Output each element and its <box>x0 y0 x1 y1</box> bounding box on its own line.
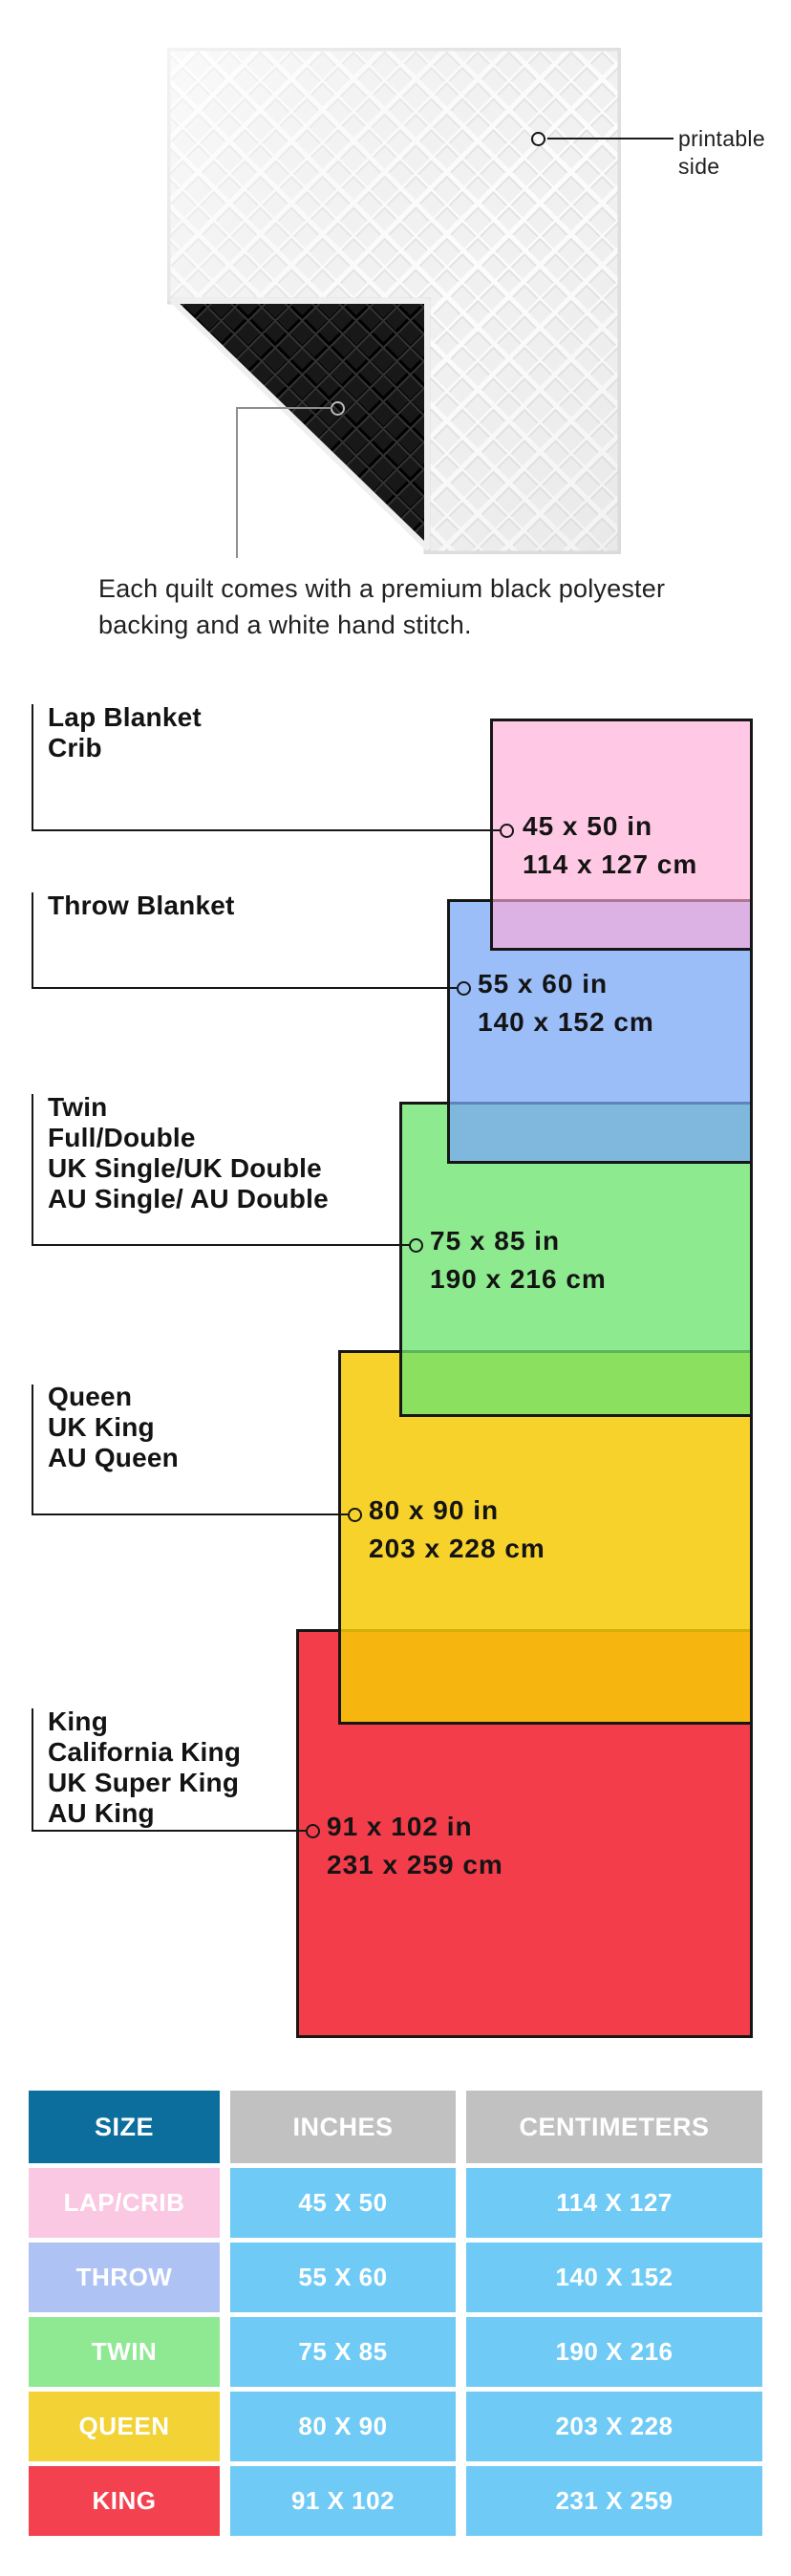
leader-king-circle-icon <box>306 1824 320 1838</box>
size-label-twin-line: AU Single/ AU Double <box>48 1184 329 1214</box>
leader-lap-horizontal <box>32 829 500 831</box>
size-label-king-line: California King <box>48 1737 241 1768</box>
size-label-twin-line: Twin <box>48 1092 329 1123</box>
dimensions-king: 91 x 102 in 231 x 259 cm <box>327 1808 503 1884</box>
size-label-lap: Lap Blanket Crib <box>48 702 202 763</box>
table-row-twin-size: TWIN <box>29 2317 220 2387</box>
leader-throw-vertical <box>32 892 33 988</box>
size-label-king-line: King <box>48 1707 241 1737</box>
table-row-king-cm: 231 X 259 <box>466 2466 762 2536</box>
dimensions-lap-inches: 45 x 50 in <box>523 807 697 846</box>
dimensions-lap: 45 x 50 in 114 x 127 cm <box>523 807 697 884</box>
dimensions-twin-cm: 190 x 216 cm <box>430 1260 607 1299</box>
backing-caption: Each quilt comes with a premium black po… <box>98 570 729 643</box>
leader-king-vertical <box>32 1708 33 1831</box>
backing-leader-line-vertical <box>236 407 238 558</box>
dimensions-throw: 55 x 60 in 140 x 152 cm <box>478 965 654 1041</box>
size-label-queen-line: Queen <box>48 1382 179 1412</box>
leader-queen-vertical <box>32 1385 33 1514</box>
size-label-king: King California King UK Super King AU Ki… <box>48 1707 241 1829</box>
backing-caption-line1: Each quilt comes with a premium black po… <box>98 570 729 607</box>
table-row-king-inches: 91 X 102 <box>230 2466 456 2536</box>
size-label-lap-line: Crib <box>48 733 202 763</box>
backing-callout-circle-icon <box>331 401 345 416</box>
dimensions-lap-cm: 114 x 127 cm <box>523 846 697 884</box>
size-label-queen: Queen UK King AU Queen <box>48 1382 179 1473</box>
size-label-king-line: UK Super King <box>48 1768 241 1798</box>
table-row-throw-size: THROW <box>29 2243 220 2312</box>
backing-leader-line-horizontal <box>237 407 332 409</box>
dimensions-throw-cm: 140 x 152 cm <box>478 1003 654 1041</box>
table-header-size: SIZE <box>29 2091 220 2163</box>
size-table: SIZE INCHES CENTIMETERS LAP/CRIB 45 X 50… <box>29 2091 762 2536</box>
size-label-twin-line: UK Single/UK Double <box>48 1153 329 1184</box>
leader-lap-circle-icon <box>500 824 514 838</box>
size-label-throw-line: Throw Blanket <box>48 891 235 921</box>
leader-throw-circle-icon <box>457 981 471 996</box>
table-row-lap-size: LAP/CRIB <box>29 2168 220 2238</box>
size-label-queen-line: UK King <box>48 1412 179 1443</box>
printable-side-label-line2: side <box>678 153 765 181</box>
leader-lap-vertical <box>32 704 33 829</box>
table-row-twin-inches: 75 X 85 <box>230 2317 456 2387</box>
dimensions-queen-inches: 80 x 90 in <box>369 1492 545 1530</box>
quilt-size-infographic: printable side Each quilt comes with a p… <box>0 0 791 2576</box>
table-header-centimeters: CENTIMETERS <box>466 2091 762 2163</box>
leader-twin-vertical <box>32 1094 33 1244</box>
table-row-king-size: KING <box>29 2466 220 2536</box>
table-row-queen-size: QUEEN <box>29 2392 220 2461</box>
dimensions-twin: 75 x 85 in 190 x 216 cm <box>430 1222 607 1299</box>
size-label-king-line: AU King <box>48 1798 241 1829</box>
table-row-lap-inches: 45 X 50 <box>230 2168 456 2238</box>
leader-queen-horizontal <box>32 1513 348 1515</box>
size-label-twin-line: Full/Double <box>48 1123 329 1153</box>
table-row-throw-inches: 55 X 60 <box>230 2243 456 2312</box>
dimensions-king-cm: 231 x 259 cm <box>327 1846 503 1884</box>
size-label-throw: Throw Blanket <box>48 891 235 921</box>
leader-queen-circle-icon <box>348 1508 362 1522</box>
table-row-twin-cm: 190 X 216 <box>466 2317 762 2387</box>
table-row-lap-cm: 114 X 127 <box>466 2168 762 2238</box>
table-row-throw-cm: 140 X 152 <box>466 2243 762 2312</box>
leader-king-horizontal <box>32 1830 306 1832</box>
backing-caption-line2: backing and a white hand stitch. <box>98 607 729 643</box>
table-row-queen-cm: 203 X 228 <box>466 2392 762 2461</box>
dimensions-twin-inches: 75 x 85 in <box>430 1222 607 1260</box>
leader-twin-circle-icon <box>409 1238 423 1253</box>
leader-twin-horizontal <box>32 1244 409 1246</box>
leader-throw-horizontal <box>32 987 457 989</box>
dimensions-king-inches: 91 x 102 in <box>327 1808 503 1846</box>
size-label-queen-line: AU Queen <box>48 1443 179 1473</box>
table-header-inches: INCHES <box>230 2091 456 2163</box>
table-row-queen-inches: 80 X 90 <box>230 2392 456 2461</box>
printable-side-leader-line <box>547 138 673 140</box>
printable-side-label-line1: printable <box>678 125 765 153</box>
printable-side-callout-circle-icon <box>531 132 545 146</box>
dimensions-queen-cm: 203 x 228 cm <box>369 1530 545 1568</box>
dimensions-queen: 80 x 90 in 203 x 228 cm <box>369 1492 545 1568</box>
printable-side-label: printable side <box>678 125 765 181</box>
size-label-lap-line: Lap Blanket <box>48 702 202 733</box>
size-label-twin: Twin Full/Double UK Single/UK Double AU … <box>48 1092 329 1214</box>
dimensions-throw-inches: 55 x 60 in <box>478 965 654 1003</box>
